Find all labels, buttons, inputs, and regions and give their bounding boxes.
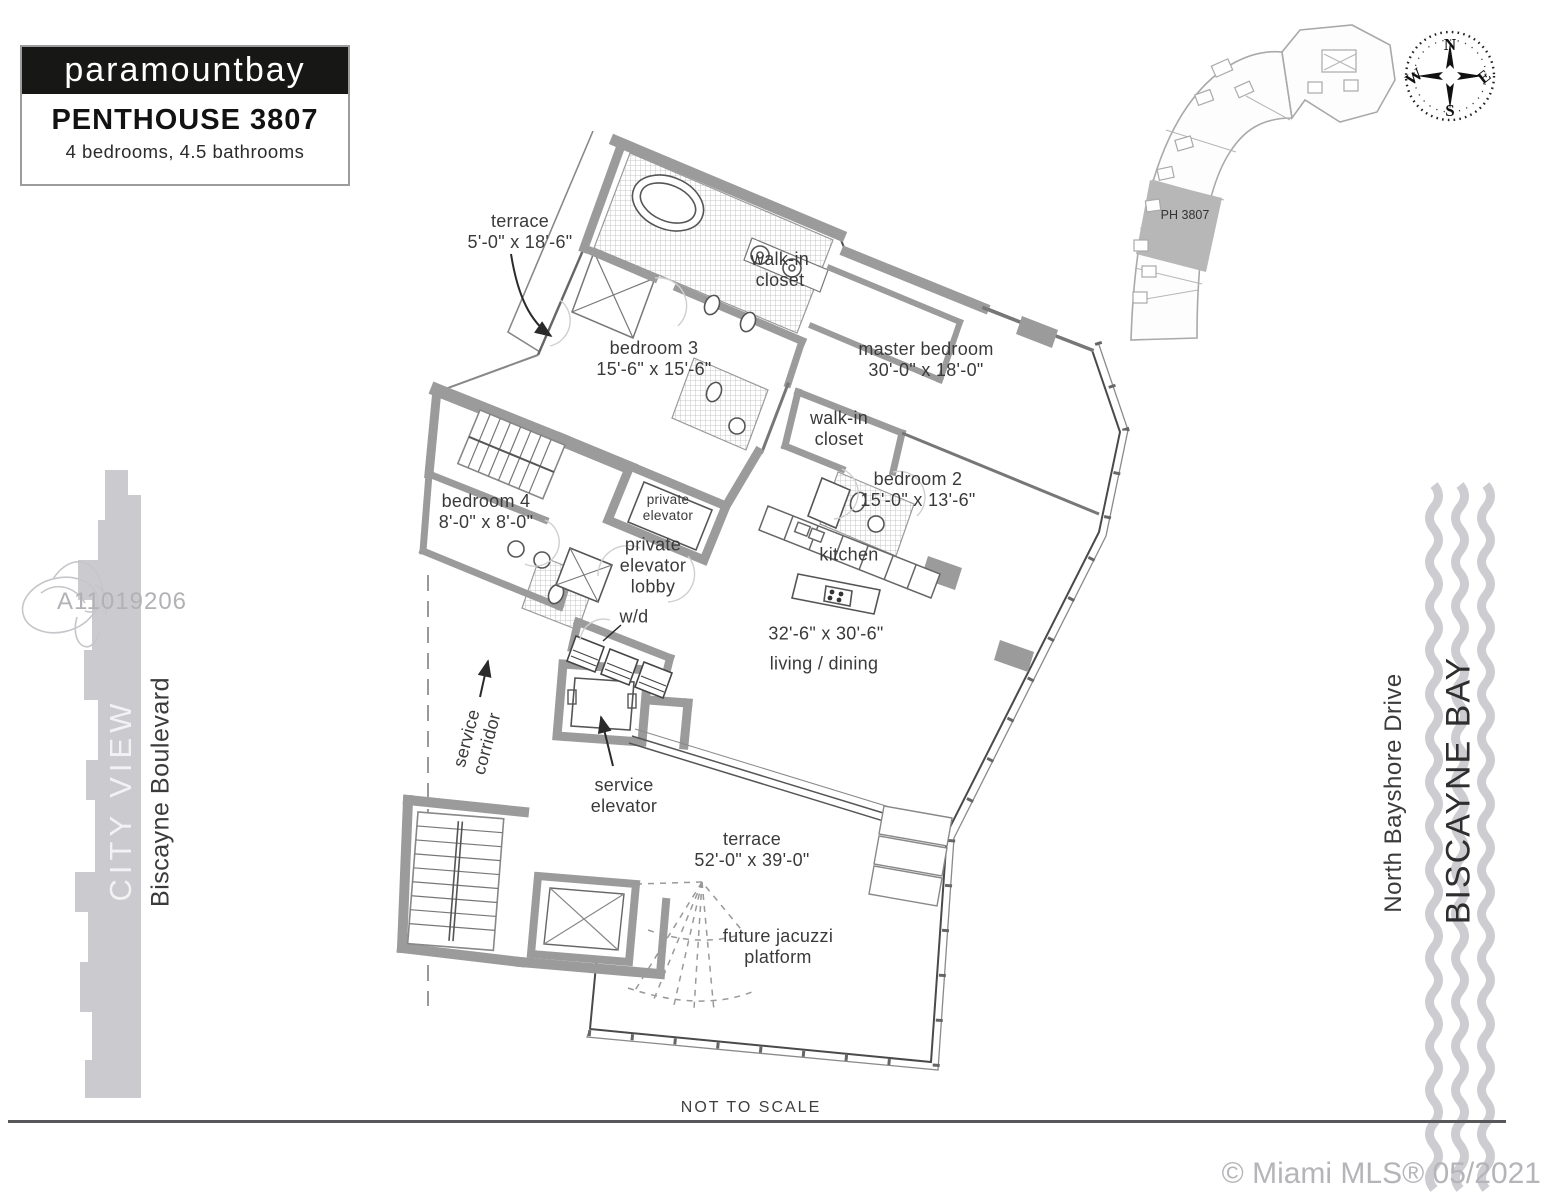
compass-north: N — [1444, 35, 1457, 54]
label-walk-in-closet-master: walk-in closet — [810, 408, 868, 450]
service-elevator-shaft — [557, 664, 648, 742]
footer-divider — [8, 1120, 1506, 1123]
mls-copyright: © Miami MLS® 05/2021 — [1222, 1157, 1541, 1191]
page-title: PENTHOUSE 3807 — [22, 104, 348, 137]
compass-east: E — [1474, 66, 1495, 88]
floorplan-sheet: paramountbay PENTHOUSE 3807 4 bedrooms, … — [0, 0, 1553, 1200]
label-living-dining-dims: 32'-6" x 30'-6" — [768, 624, 883, 645]
compass-west: W — [1402, 64, 1427, 89]
secondary-elevator-shaft — [531, 876, 636, 962]
keyplan-unit-label: PH 3807 — [1161, 208, 1210, 222]
stairs-lower — [408, 812, 504, 950]
label-bedroom3: bedroom 3 15'-6" x 15'-6" — [596, 338, 711, 380]
brand-bar: paramountbay — [22, 47, 348, 94]
label-terrace-upper: terrace 5'-0" x 18'-6" — [468, 211, 573, 253]
mls-watermark-id: A11019206 — [57, 588, 187, 616]
compass-south: S — [1445, 101, 1454, 120]
label-kitchen: kitchen — [819, 545, 878, 566]
page-subtitle: 4 bedrooms, 4.5 bathrooms — [22, 141, 348, 163]
sliding-doors — [629, 729, 909, 827]
scale-note: NOT TO SCALE — [681, 1099, 821, 1117]
header-card: paramountbay PENTHOUSE 3807 4 bedrooms, … — [20, 45, 350, 186]
label-living-dining: living / dining — [770, 654, 879, 675]
kitchen-island — [792, 574, 880, 614]
label-bedroom4: bedroom 4 8'-0" x 8'-0" — [439, 491, 534, 533]
biscayne-bay-label: BISCAYNE BAY — [1440, 656, 1479, 924]
label-private-elevator-lobby: private elevator lobby — [620, 535, 686, 598]
north-bayshore-drive-label: North Bayshore Drive — [1380, 673, 1408, 912]
label-future-jacuzzi: future jacuzzi platform — [723, 926, 833, 968]
compass-rose-icon: N S W E — [1398, 24, 1502, 128]
label-service-elevator: service elevator — [591, 775, 657, 817]
building-keyplan: PH 3807 — [1118, 22, 1408, 347]
terrace-planters — [869, 806, 952, 906]
label-walk-in-closet-top: walk-in closet — [751, 249, 809, 291]
biscayne-boulevard-label: Biscayne Boulevard — [147, 677, 176, 907]
label-terrace-main: terrace 52'-0" x 39'-0" — [694, 829, 809, 871]
label-private-elevator: private elevator — [643, 492, 693, 524]
stairs-upper — [458, 410, 565, 499]
city-view-label: CITY VIEW — [103, 699, 139, 902]
label-bedroom2: bedroom 2 15'-0" x 13'-6" — [860, 469, 975, 511]
label-washer-dryer: w/d — [620, 607, 649, 628]
label-master-bedroom: master bedroom 30'-0" x 18'-0" — [858, 339, 993, 381]
brand-logo: paramountbay — [64, 51, 305, 90]
